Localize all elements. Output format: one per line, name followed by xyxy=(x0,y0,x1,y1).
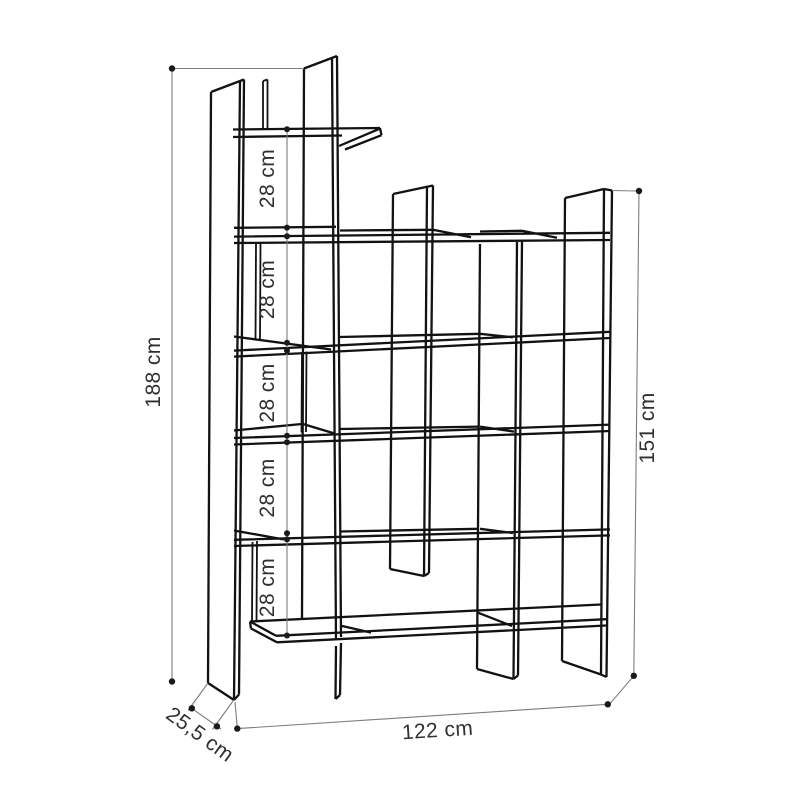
dim-dot xyxy=(284,225,290,231)
label-total-height: 188 cm xyxy=(142,336,165,407)
dim-dot xyxy=(214,723,220,729)
dim-dot xyxy=(631,673,637,679)
dim-dot xyxy=(284,536,290,542)
label-shelf-gap-2: 28 cm xyxy=(256,260,279,319)
dim-dot xyxy=(284,433,290,439)
dim-dot xyxy=(234,725,240,731)
canvas-background xyxy=(0,0,800,800)
dim-dot xyxy=(284,233,290,239)
label-shelf-gap-3: 28 cm xyxy=(256,363,279,422)
dim-dot xyxy=(605,701,611,707)
dim-dot xyxy=(169,678,175,684)
dim-dot xyxy=(189,705,195,711)
label-shelf-gap-4: 28 cm xyxy=(256,458,279,517)
dim-dot xyxy=(284,126,290,132)
dim-dot xyxy=(284,633,290,639)
label-right-height: 151 cm xyxy=(636,392,659,463)
dim-dot xyxy=(284,348,290,354)
label-shelf-gap-5: 28 cm xyxy=(256,558,279,617)
dim-dot xyxy=(284,530,290,536)
dim-dot xyxy=(169,65,175,71)
bookshelf-dimension-diagram: 188 cm 28 cm 28 cm 28 cm 28 cm 28 cm 151… xyxy=(0,0,800,800)
diagram-canvas: 188 cm 28 cm 28 cm 28 cm 28 cm 28 cm 151… xyxy=(0,0,800,800)
label-shelf-gap-1: 28 cm xyxy=(256,149,279,208)
dim-dot xyxy=(284,340,290,346)
dim-dot xyxy=(284,439,290,445)
dim-dot xyxy=(636,188,642,194)
label-width: 122 cm xyxy=(401,717,474,745)
